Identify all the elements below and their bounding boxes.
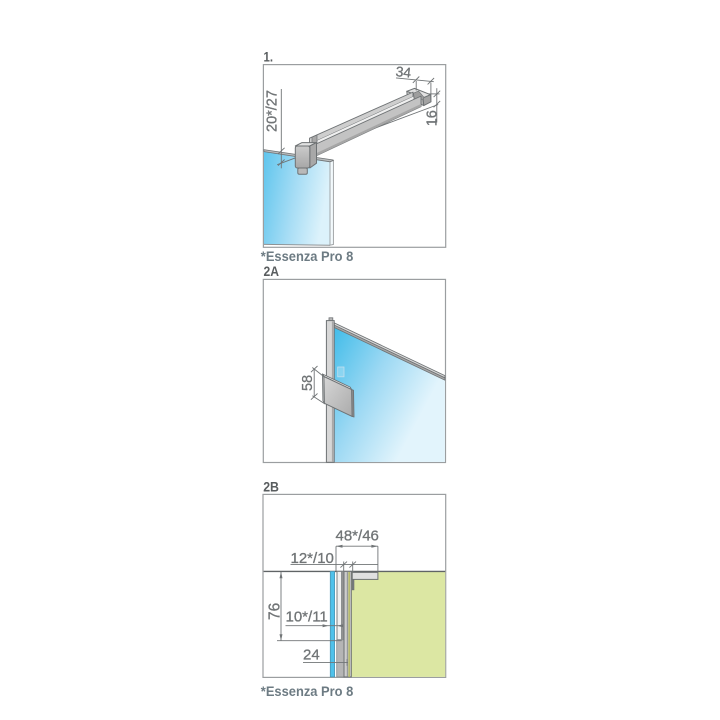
svg-text:20*/27: 20*/27 <box>265 90 281 132</box>
svg-text:16: 16 <box>424 110 440 126</box>
svg-text:*Essenza Pro 8: *Essenza Pro 8 <box>261 683 354 699</box>
svg-text:2A: 2A <box>264 264 280 279</box>
svg-text:*Essenza Pro 8: *Essenza Pro 8 <box>261 248 354 264</box>
svg-text:2B: 2B <box>263 479 279 494</box>
svg-text:24: 24 <box>303 647 320 664</box>
svg-text:48*/46: 48*/46 <box>336 528 379 545</box>
svg-text:10*/11: 10*/11 <box>286 609 328 626</box>
svg-text:34: 34 <box>395 63 412 81</box>
svg-text:76: 76 <box>266 603 283 620</box>
svg-text:58: 58 <box>300 375 316 391</box>
svg-text:1.: 1. <box>264 50 274 65</box>
